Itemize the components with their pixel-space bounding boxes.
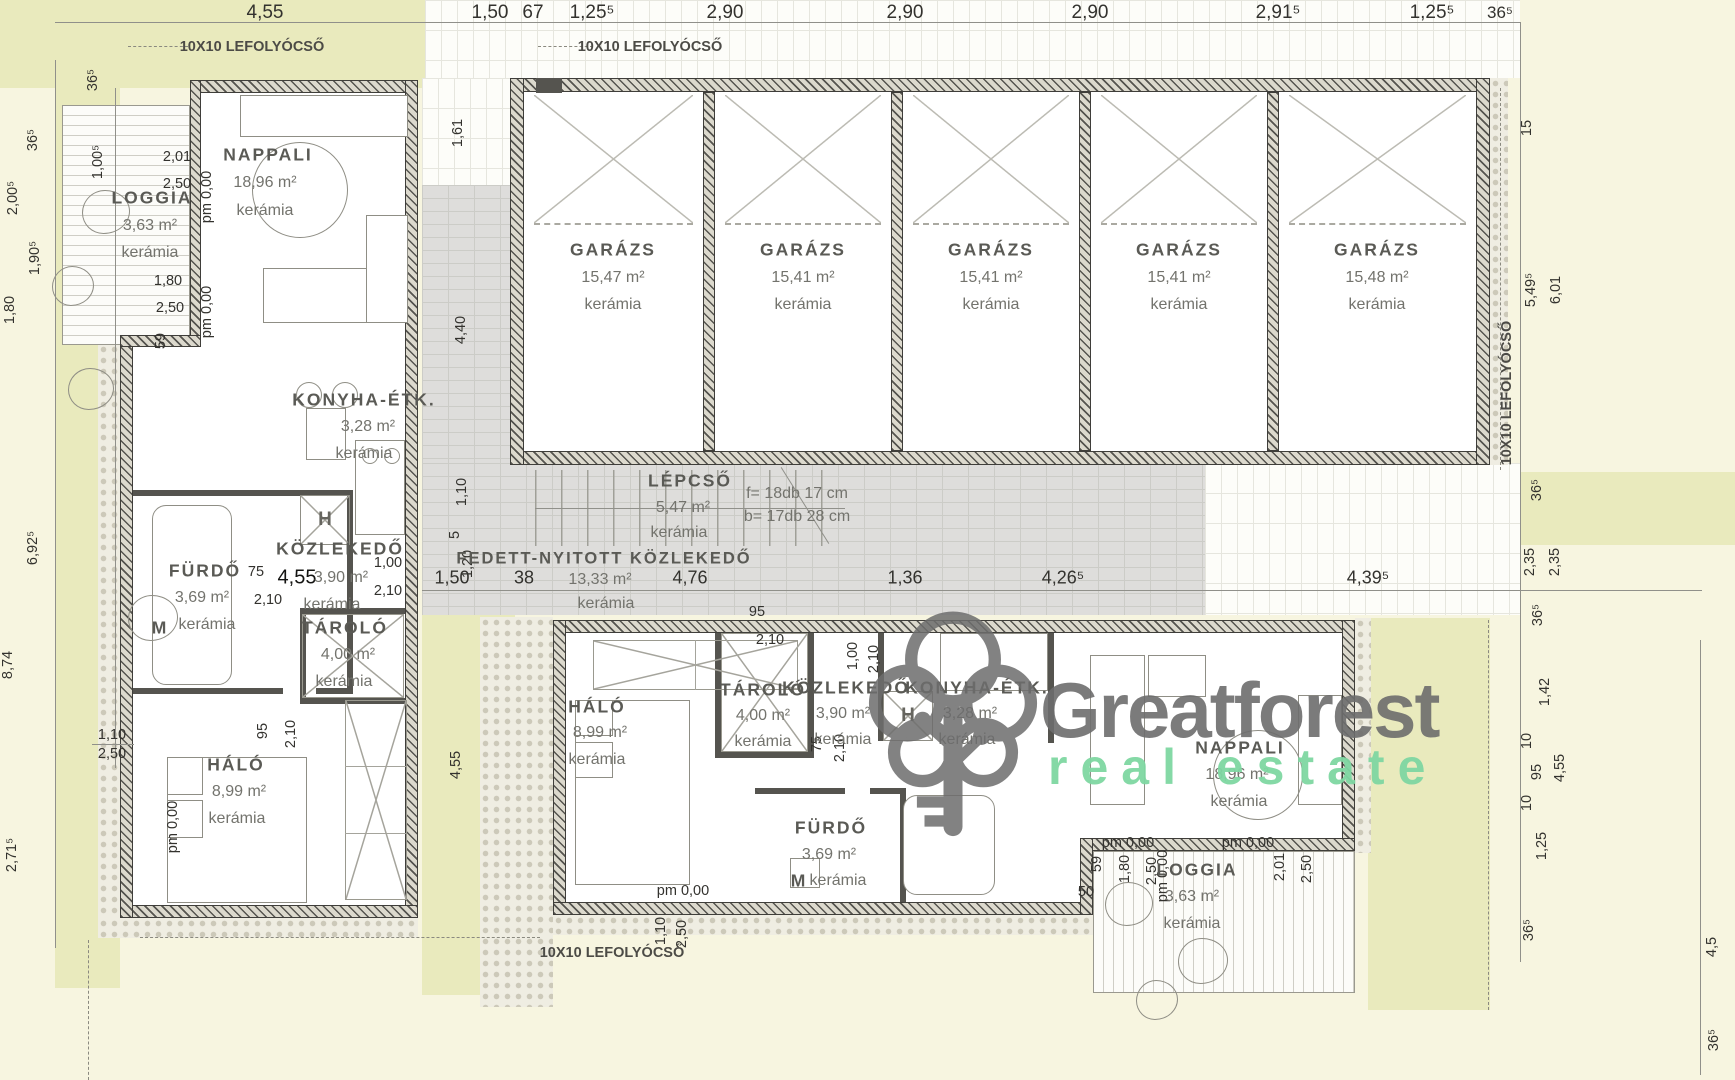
- apt-bottom-partition: [715, 752, 814, 758]
- lawn-right-band: [1520, 472, 1735, 545]
- watermark-tagline: real estate: [1048, 738, 1438, 796]
- pillow: [167, 757, 203, 795]
- dim-top: 36⁵: [1487, 3, 1513, 23]
- room-finish: kerámia: [578, 595, 635, 613]
- room-area: 3,63 m²: [123, 217, 177, 235]
- dim-apt-bottom: 1,10: [653, 917, 669, 945]
- dim-path: 4,40: [453, 316, 469, 344]
- room-title-loggia-bottom: LOGGIA: [1156, 860, 1237, 881]
- apt-bottom-partition: [755, 788, 845, 794]
- dim-right: 10: [1519, 795, 1535, 811]
- room-area: 3,69 m²: [175, 589, 229, 607]
- dim-top: 2,90: [887, 2, 924, 24]
- dim-left: 2,71⁵: [4, 838, 20, 872]
- garage-partition: [1267, 92, 1279, 451]
- dim-top: 67: [522, 2, 543, 24]
- room-finish: kerámia: [336, 445, 393, 463]
- dim-top: 1,25⁵: [1410, 2, 1455, 24]
- garage-wall-south: [510, 451, 1490, 465]
- wardrobe-cabinet: [345, 700, 407, 900]
- dim-top: 4,55: [247, 2, 284, 24]
- room-finish: kerámia: [1151, 296, 1208, 314]
- dim-row: 1,50: [434, 568, 469, 589]
- dim-apt-bottom: 95: [749, 604, 765, 620]
- room-area: 3,90 m²: [314, 569, 368, 587]
- dim-path: 5: [447, 531, 463, 539]
- room-area: 3,28 m²: [341, 418, 395, 436]
- dim-right: 36⁵: [1706, 1029, 1722, 1051]
- apt-top-partition: [133, 688, 283, 694]
- garage-wall-east: [1476, 78, 1490, 465]
- drain-label: 10X10 LEFOLYÓCSŐ: [1499, 321, 1515, 466]
- room-area: 15,41 m²: [959, 269, 1022, 287]
- dim-left: 2,00⁵: [5, 181, 21, 215]
- dim-right: 36⁵: [1521, 919, 1537, 941]
- drain-line-bottom: [140, 937, 540, 938]
- dim-path: 1,61: [450, 119, 466, 147]
- dim-right: 36⁵: [1529, 479, 1545, 501]
- room-title-walkway: FEDETT-NYITOTT KÖZLEKEDŐ: [456, 550, 751, 569]
- dim-right: 4,5: [1704, 937, 1720, 957]
- dim-line-row: [422, 590, 1702, 591]
- dim-row: 38: [514, 568, 534, 589]
- garage-door-mark: [913, 95, 1069, 225]
- room-title-furdo-top: FÜRDŐ: [169, 561, 241, 582]
- garage-partition: [703, 92, 715, 451]
- dim-right: 4,55: [1552, 754, 1568, 782]
- dim-top: 2,91⁵: [1256, 2, 1301, 24]
- dim-right: 95: [1529, 764, 1545, 780]
- dim-line-right: [1520, 22, 1521, 962]
- floor-plan-canvas: H H 4,55 1,50 67 1,25⁵ 2,90 2,90 2,90 2,…: [0, 0, 1735, 1080]
- garage-wall-west: [510, 78, 524, 465]
- drain-label: 10X10 LEFOLYÓCSŐ: [578, 39, 723, 55]
- room-finish: kerámia: [651, 524, 708, 542]
- room-title-halo-top: HÁLÓ: [207, 755, 265, 776]
- room-finish: kerámia: [122, 244, 179, 262]
- dim-left: 6,92⁵: [25, 531, 41, 565]
- dim-apt-bottom: 2,50: [1299, 855, 1315, 883]
- dim-apt-top: 95: [255, 723, 271, 739]
- apt-top-wall-north: [190, 80, 418, 93]
- wardrobe-divider: [345, 766, 407, 767]
- stair-treads-note: b= 17db 28 cm: [744, 508, 850, 526]
- level-mark: pm 0,00: [1222, 835, 1274, 851]
- room-title-tarolo-top: TÁROLÓ: [302, 618, 388, 639]
- room-finish: kerámia: [1164, 915, 1221, 933]
- dim-path: 4,55: [448, 751, 464, 779]
- room-finish: kerámia: [569, 751, 626, 769]
- room-title-halo-bottom: HÁLÓ: [568, 697, 626, 718]
- wardrobe-divider: [345, 833, 407, 834]
- room-finish: kerámia: [963, 296, 1020, 314]
- dim-left: 8,74: [0, 651, 16, 679]
- dim-right: 1,42: [1537, 678, 1553, 706]
- shrub: [1136, 980, 1178, 1020]
- garage-partition: [1079, 92, 1091, 451]
- property-line-right: [1488, 620, 1489, 1010]
- dim-top: 1,50: [472, 2, 509, 24]
- dim-row: 4,39⁵: [1347, 568, 1390, 589]
- dim-left: 1,00⁵: [90, 145, 106, 179]
- drain-label: 10X10 LEFOLYÓCSŐ: [540, 945, 685, 961]
- apt-bottom-wall-step: [1080, 838, 1093, 915]
- room-area: 8,99 m²: [212, 783, 266, 801]
- room-title-nappali-top: NAPPALI: [223, 145, 313, 166]
- sofa-chaise: [366, 215, 408, 323]
- room-title-lepcso: LÉPCSŐ: [648, 471, 732, 492]
- room-area: 4,00 m²: [321, 646, 375, 664]
- level-mark: pm 0,00: [199, 286, 215, 338]
- room-title-garage-4: GARÁZS: [1136, 240, 1222, 261]
- dim-apt-bottom: 59: [1089, 856, 1105, 872]
- level-mark: pm 0,00: [1102, 835, 1154, 851]
- room-area: 3,63 m²: [1165, 888, 1219, 906]
- dim-left: 36⁵: [25, 129, 41, 151]
- dim-right: 2,35: [1547, 548, 1563, 576]
- dim-right: 1,25: [1534, 832, 1550, 860]
- room-finish: kerámia: [179, 616, 236, 634]
- room-finish: kerámia: [316, 673, 373, 691]
- dim-apt-bottom: 50: [1078, 884, 1094, 900]
- dim-right: 36⁵: [1530, 604, 1546, 626]
- heater-box-top: H: [300, 495, 350, 545]
- room-title-furdo-bottom: FÜRDŐ: [795, 818, 867, 839]
- room-area: 15,48 m²: [1345, 269, 1408, 287]
- paving-right-of-corridor: [1205, 463, 1520, 615]
- dim-apt-bottom: 2,10: [756, 632, 784, 648]
- dim-apt-bottom: 1,80: [1117, 855, 1133, 883]
- pebble-bottom-building-south: [553, 915, 1098, 935]
- dim-apt-top: 2,10: [374, 583, 402, 599]
- wardrobe-divider: [695, 640, 696, 690]
- dim-right: 6,01: [1548, 276, 1564, 304]
- room-title-garage-1: GARÁZS: [570, 240, 656, 261]
- room-title-garage-2: GARÁZS: [760, 240, 846, 261]
- room-area: 4,00 m²: [736, 707, 790, 725]
- drain-label: 10X10 LEFOLYÓCSŐ: [180, 39, 325, 55]
- room-finish: kerámia: [775, 296, 832, 314]
- room-area: 5,47 m²: [656, 499, 710, 517]
- garage-door-mark: [725, 95, 881, 225]
- garage-door-mark: [534, 95, 693, 225]
- room-finish: kerámia: [810, 872, 867, 890]
- room-area: 15,41 m²: [1147, 269, 1210, 287]
- room-finish: kerámia: [1349, 296, 1406, 314]
- apt-top-wall-south: [120, 905, 418, 918]
- dim-apt-top: 59: [153, 333, 169, 349]
- dim-path: 1,10: [454, 478, 470, 506]
- garage-corner-marker: [536, 78, 562, 93]
- washer-label: M: [791, 871, 808, 892]
- garage-door-mark: [1101, 95, 1257, 225]
- room-finish: kerámia: [585, 296, 642, 314]
- dim-row: 1,36: [887, 568, 922, 589]
- dim-right: 15: [1519, 120, 1535, 136]
- dim-line-corner: [1700, 640, 1701, 1075]
- dim-row: 4,26⁵: [1042, 568, 1085, 589]
- watermark-tree-icon: [858, 600, 1048, 850]
- dim-left: 2,50: [98, 746, 126, 762]
- dim-left: 36⁵: [85, 69, 101, 91]
- room-area: 13,33 m²: [568, 571, 631, 589]
- dim-line-left-outer: [55, 60, 56, 948]
- room-finish: kerámia: [304, 596, 361, 614]
- pebble-left-building-west: [98, 333, 120, 918]
- room-area: 18,96 m²: [233, 174, 296, 192]
- stair-risers-note: f= 18db 17 cm: [746, 485, 848, 503]
- dim-right: 5,49⁵: [1523, 273, 1539, 307]
- dim-row: 4,76: [672, 568, 707, 589]
- fraction-line: [92, 744, 134, 745]
- room-title-konyha-top: KONYHA-ÉTK.: [292, 390, 436, 411]
- dim-apt-top: 1,80: [154, 273, 182, 289]
- dim-apt-bottom: 2,50: [674, 920, 690, 948]
- dim-apt-top: 4,55: [278, 567, 317, 590]
- washer-label: M: [152, 618, 169, 639]
- room-title-garage-3: GARÁZS: [948, 240, 1034, 261]
- dim-right: 10: [1519, 733, 1535, 749]
- level-mark: pm 0,00: [165, 801, 181, 853]
- dim-apt-top: 2,50: [156, 300, 184, 316]
- dim-apt-top: 75: [248, 564, 264, 580]
- dim-top: 2,90: [1072, 2, 1109, 24]
- level-mark: pm 0,00: [199, 171, 215, 223]
- dim-left: 1,10: [98, 727, 126, 743]
- dim-left: 1,80: [2, 296, 18, 324]
- apt-bottom-wall-west: [553, 620, 566, 915]
- room-area: 15,41 m²: [771, 269, 834, 287]
- paving-path-top: [422, 78, 512, 185]
- room-area: 3,69 m²: [802, 846, 856, 864]
- dim-top: 1,25⁵: [570, 2, 615, 24]
- dim-top: 2,90: [707, 2, 744, 24]
- room-finish: kerámia: [209, 810, 266, 828]
- room-area: 8,99 m²: [573, 724, 627, 742]
- garage-wall-north: [510, 78, 1490, 92]
- garage-partition: [891, 92, 903, 451]
- dim-apt-top: 2,10: [283, 720, 299, 748]
- dim-left: 1,90⁵: [27, 241, 43, 275]
- room-finish: kerámia: [735, 733, 792, 751]
- room-title-kozlekedo-top: KÖZLEKEDŐ: [276, 539, 404, 560]
- room-finish: kerámia: [237, 202, 294, 220]
- room-title-garage-5: GARÁZS: [1334, 240, 1420, 261]
- dim-right: 2,35: [1522, 548, 1538, 576]
- apt-bottom-wall-south-left: [553, 902, 1093, 915]
- dim-apt-top: 2,01: [163, 149, 191, 165]
- garage-door-mark: [1289, 95, 1466, 225]
- room-title-loggia-top: LOGGIA: [111, 188, 192, 209]
- pebble-left-building-south: [98, 918, 418, 938]
- level-mark: pm 0,00: [657, 883, 709, 899]
- heater-label: H: [318, 509, 332, 531]
- dim-apt-top: 2,10: [254, 592, 282, 608]
- room-area: 15,47 m²: [581, 269, 644, 287]
- dim-apt-bottom: 2,01: [1272, 853, 1288, 881]
- sideboard: [240, 95, 408, 137]
- property-line-bottom-left: [88, 940, 89, 1080]
